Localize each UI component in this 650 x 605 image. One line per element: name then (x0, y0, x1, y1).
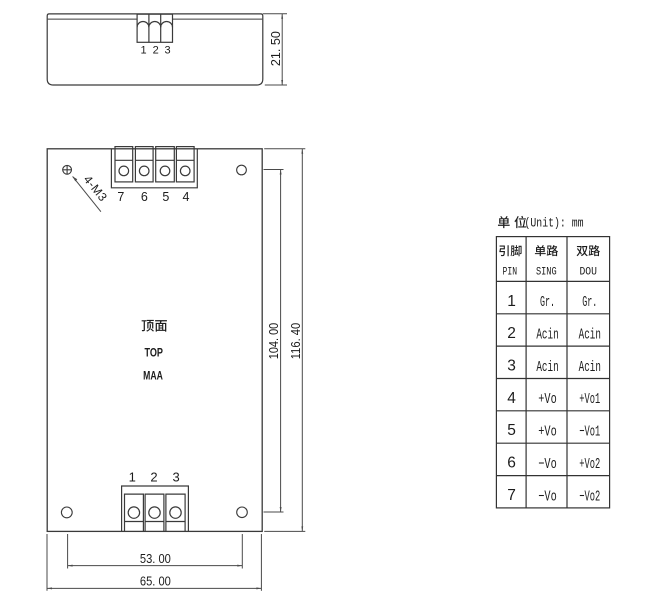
svg-text:6: 6 (141, 190, 148, 204)
svg-text:53. 00: 53. 00 (140, 551, 171, 566)
svg-text:Gr.: Gr. (540, 294, 555, 311)
svg-text:4: 4 (507, 390, 516, 407)
svg-text:7: 7 (507, 487, 516, 504)
svg-text:104. 00: 104. 00 (266, 323, 281, 360)
svg-text:116. 40: 116. 40 (288, 323, 303, 360)
svg-text:5: 5 (162, 190, 169, 204)
svg-text:−Vo1: −Vo1 (579, 424, 600, 441)
svg-text:+Vo2: +Vo2 (579, 456, 600, 473)
svg-text:Gr.: Gr. (582, 294, 597, 311)
svg-text:1: 1 (507, 293, 516, 310)
svg-text:Acin: Acin (536, 359, 558, 376)
svg-text:7: 7 (117, 190, 124, 204)
svg-text:Acin: Acin (579, 359, 601, 376)
svg-text:DOU: DOU (579, 267, 597, 279)
svg-text:TOP: TOP (144, 345, 163, 359)
svg-text:PIN: PIN (503, 267, 518, 279)
svg-text:65. 00: 65. 00 (140, 574, 171, 589)
svg-text:4-M3: 4-M3 (81, 173, 111, 205)
svg-text:−Vo: −Vo (538, 488, 557, 505)
svg-text:Acin: Acin (579, 327, 601, 344)
svg-text:+Vo: +Vo (538, 424, 557, 441)
svg-text:3: 3 (507, 358, 516, 375)
svg-text:3: 3 (172, 470, 179, 485)
svg-text:+Vo1: +Vo1 (579, 391, 600, 408)
svg-text:(Unit): mm: (Unit): mm (525, 217, 584, 231)
svg-text:2: 2 (150, 470, 157, 485)
svg-text:−Vo: −Vo (538, 456, 557, 473)
svg-text:+Vo: +Vo (538, 391, 557, 408)
svg-text:21. 50: 21. 50 (268, 31, 283, 66)
svg-text:1: 1 (129, 470, 136, 485)
svg-text:SING: SING (536, 267, 557, 279)
svg-text:2: 2 (153, 44, 159, 56)
svg-text:6: 6 (507, 455, 516, 472)
svg-text:MAA: MAA (143, 368, 163, 382)
svg-text:1: 1 (140, 44, 146, 56)
svg-text:2: 2 (507, 325, 516, 342)
svg-text:3: 3 (164, 44, 170, 56)
svg-text:−Vo2: −Vo2 (579, 488, 600, 505)
svg-text:4: 4 (183, 190, 190, 204)
svg-text:Acin: Acin (536, 327, 558, 344)
svg-text:5: 5 (507, 422, 516, 439)
